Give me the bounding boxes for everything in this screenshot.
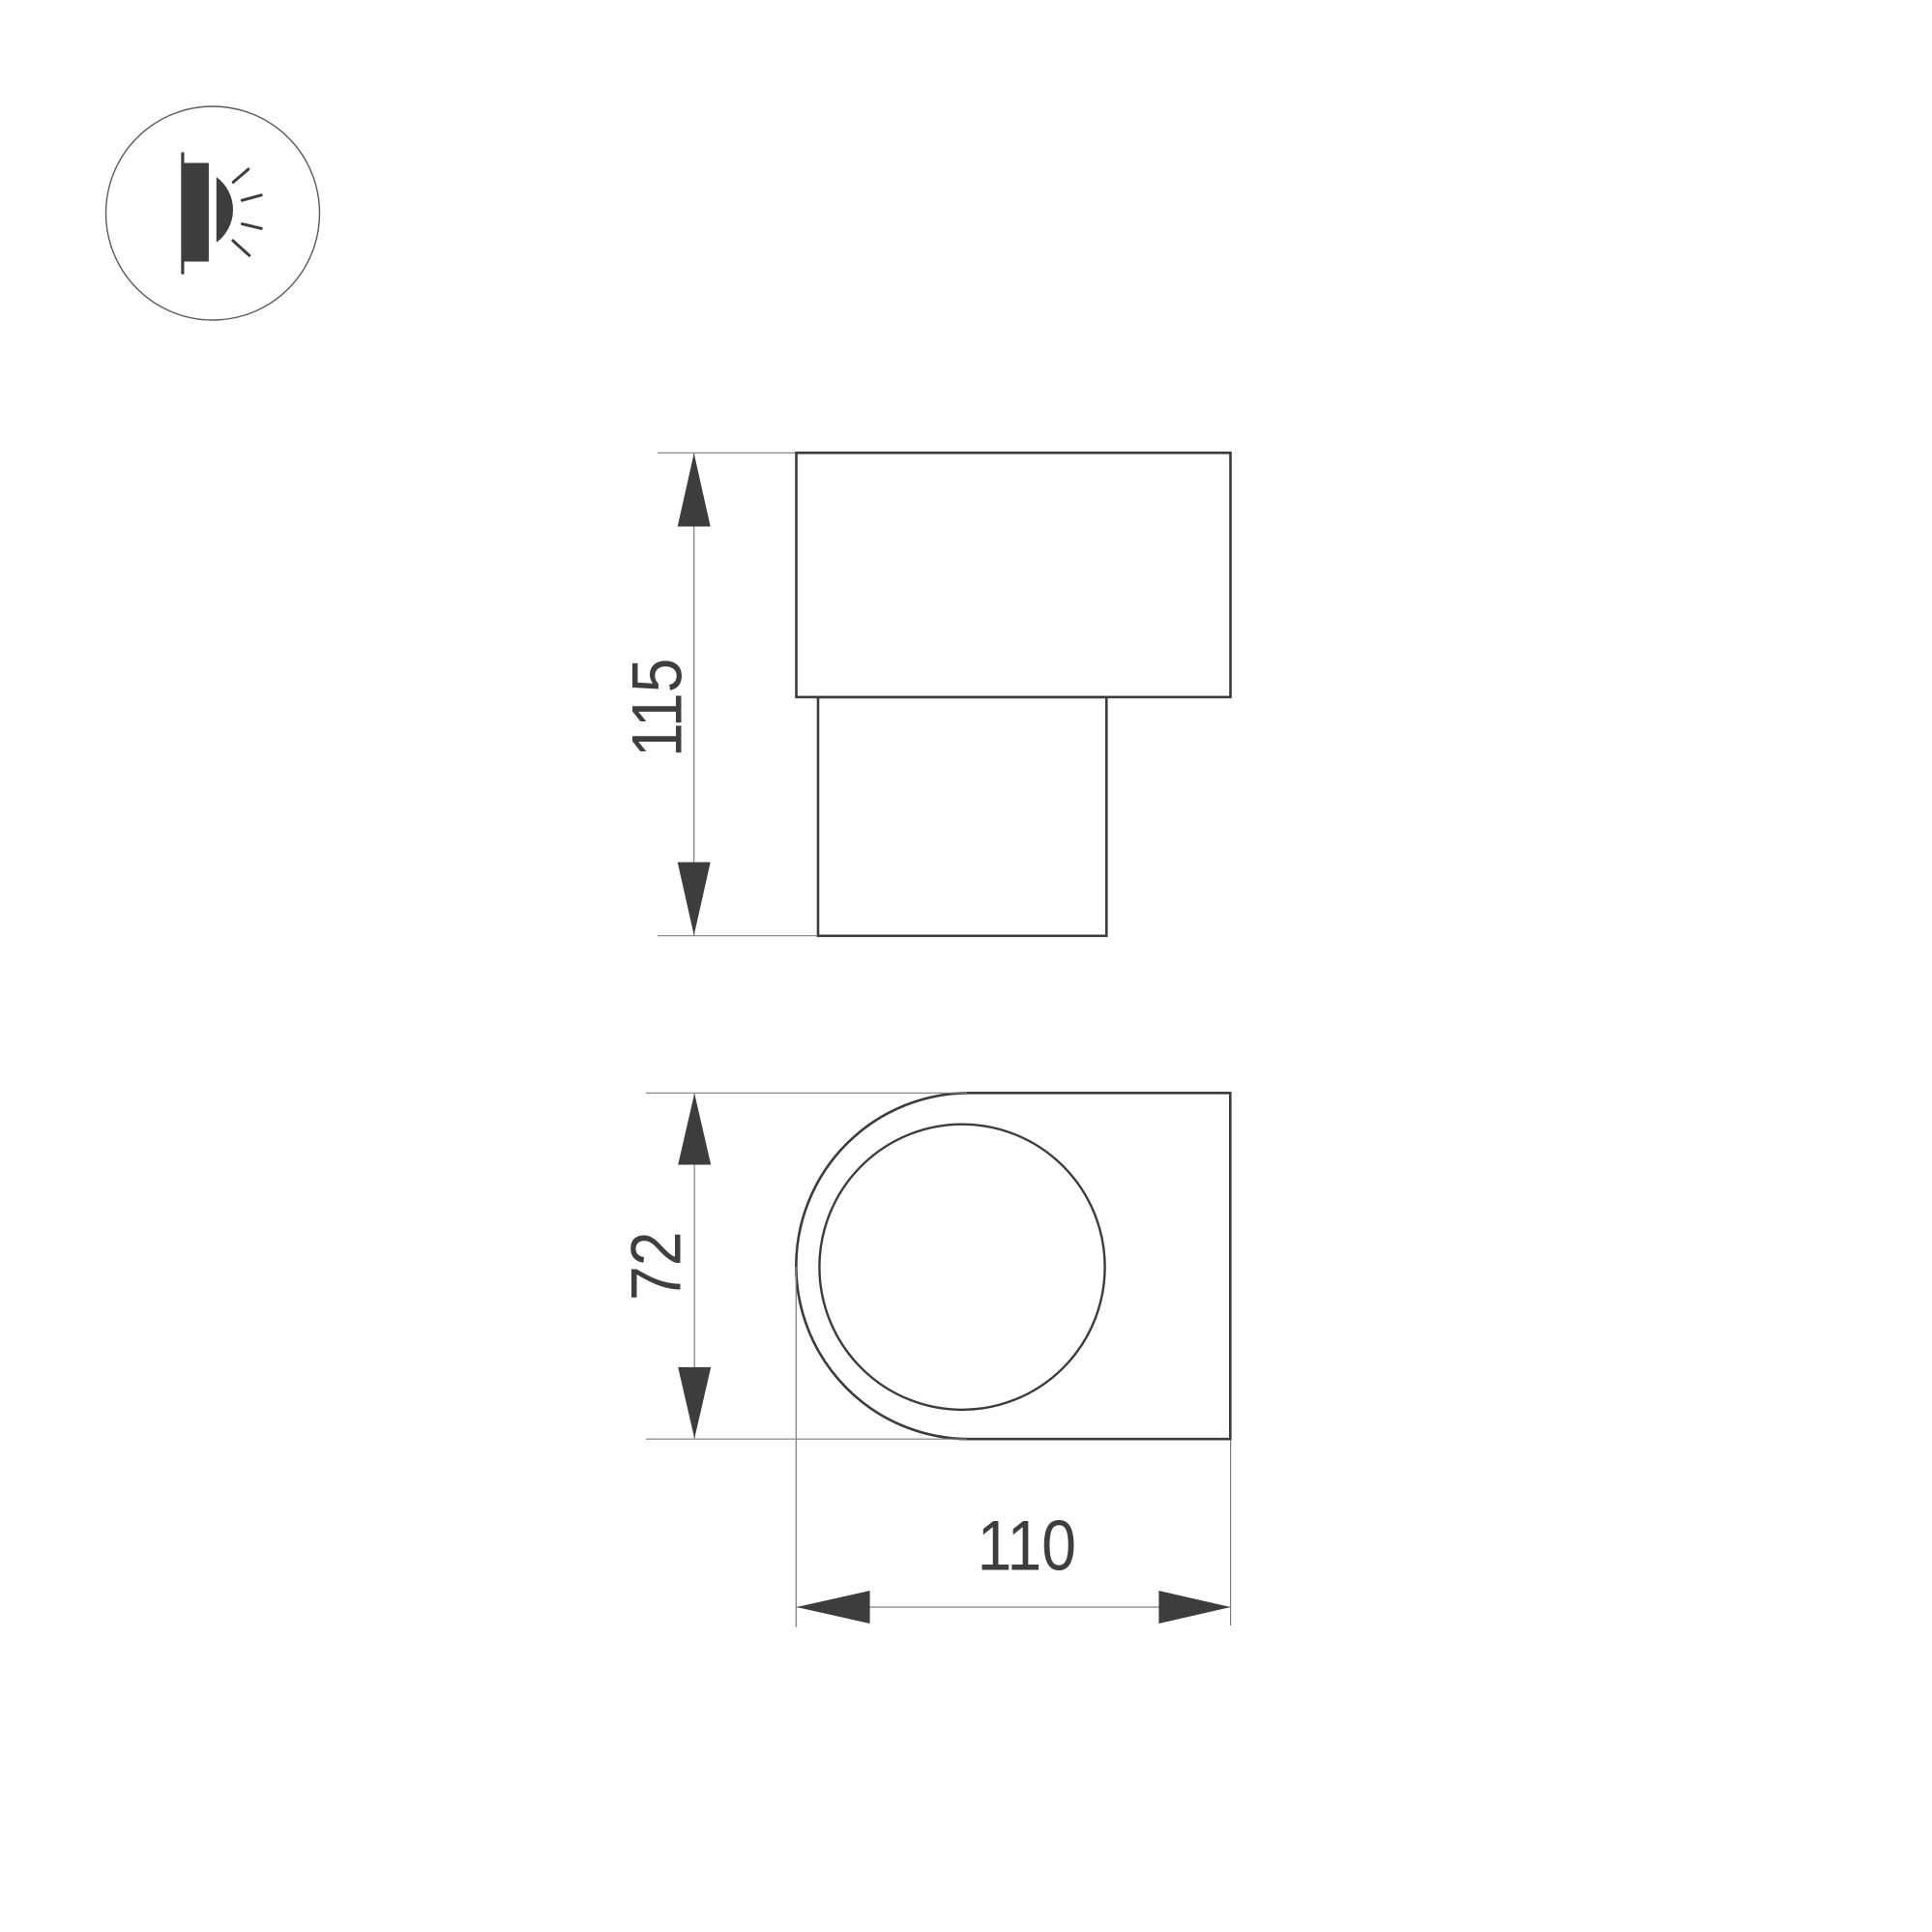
svg-text:115: 115 bbox=[618, 659, 697, 757]
svg-text:72: 72 bbox=[617, 1232, 696, 1301]
svg-text:110: 110 bbox=[978, 1507, 1076, 1586]
